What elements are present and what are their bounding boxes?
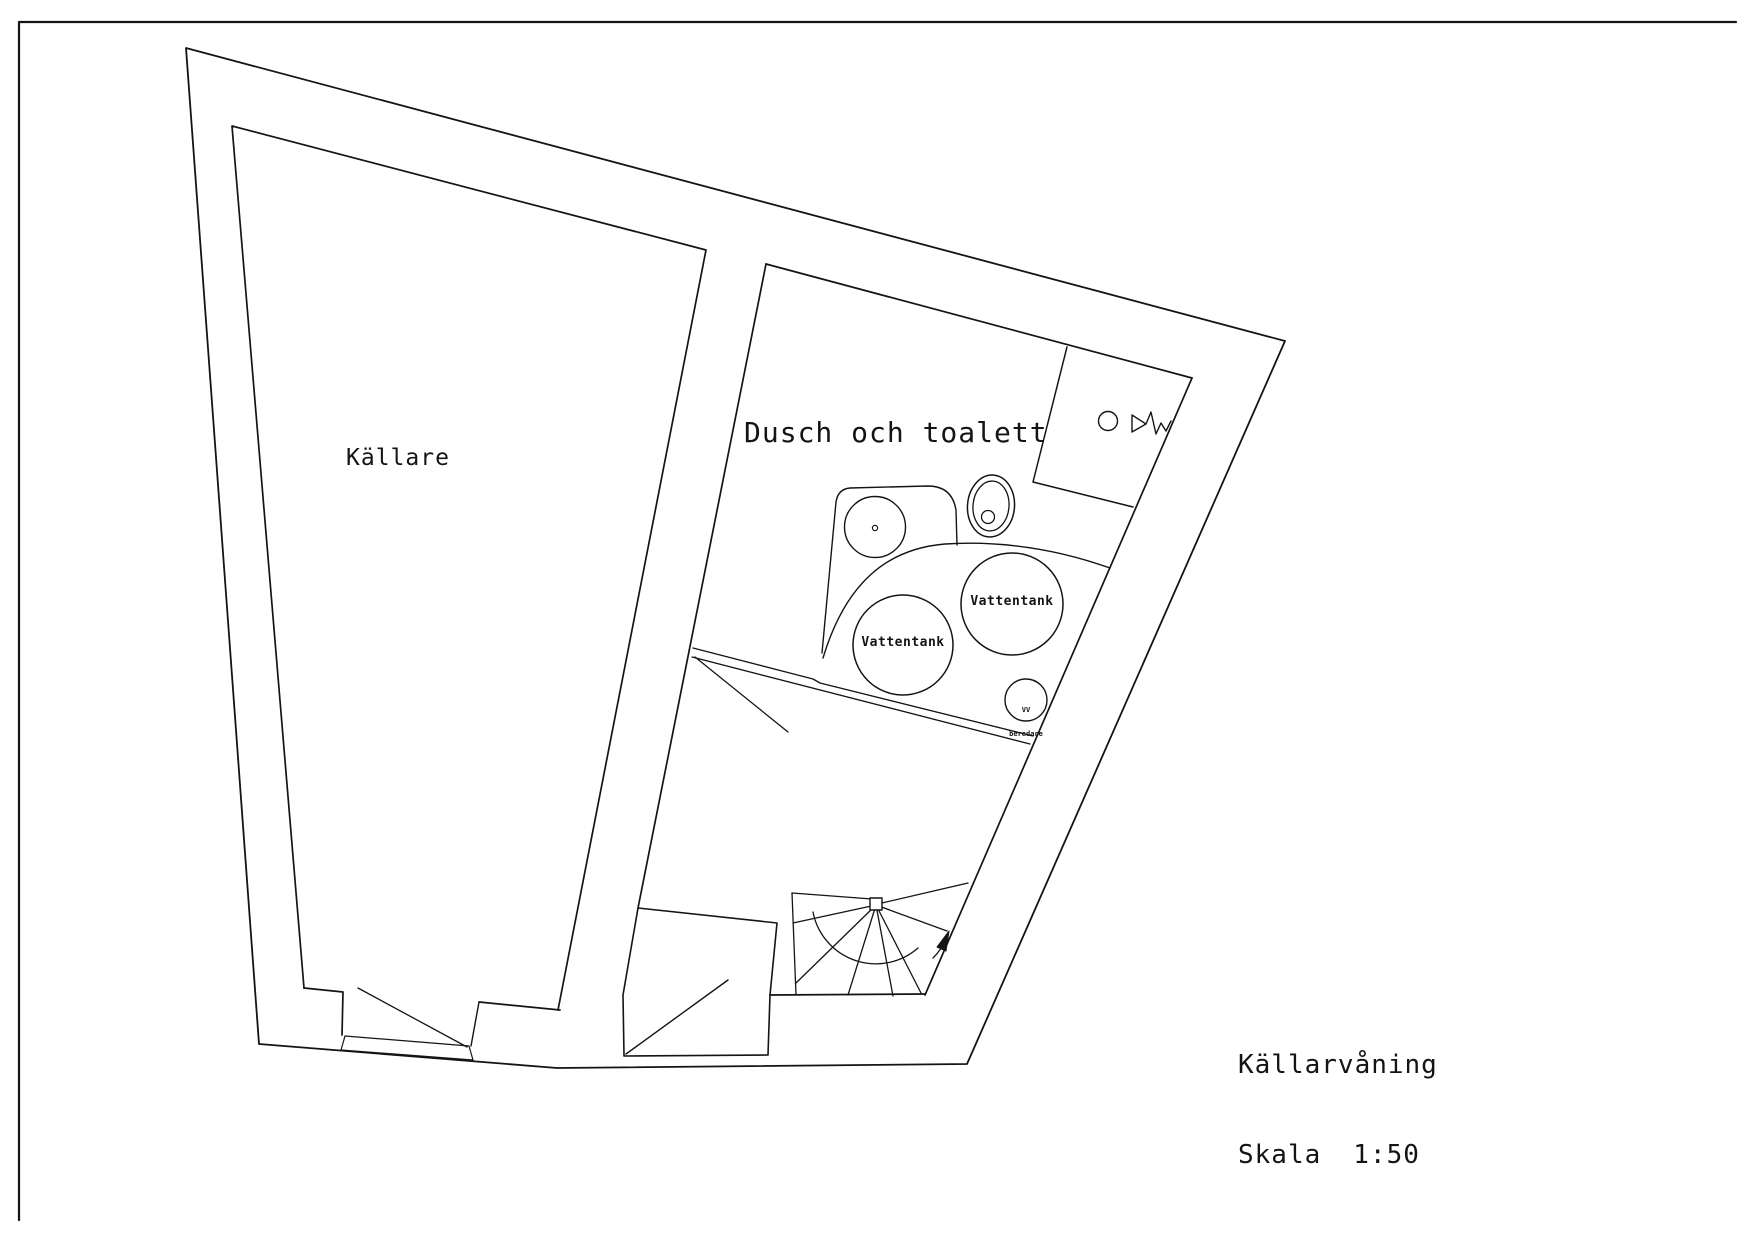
title-scale-value: 1:50 (1353, 1140, 1420, 1170)
kallare-door-jamb (471, 1002, 479, 1046)
vv-beredare-label: VV beredare (996, 690, 1056, 754)
stair-top-right-tread (882, 883, 968, 903)
bottom-wall-inner-left (479, 1002, 560, 1010)
sink-room-partition (1033, 347, 1133, 507)
vattentank-right-label: Vattentank (957, 595, 1067, 608)
shower-enclosure (822, 486, 957, 653)
title-project-name: Källarvåning (1238, 1050, 1438, 1080)
vattentank-left-label: Vattentank (848, 636, 958, 649)
valve-zigzag-symbol (1132, 412, 1171, 434)
title-block: Källarvåning Skala1:50 (1238, 990, 1438, 1230)
title-scale-label: Skala (1238, 1140, 1321, 1170)
stair-direction-arrow-head (937, 931, 949, 951)
toilet-symbol (965, 473, 1017, 539)
storage-room-outline (623, 908, 777, 1056)
stair-center-post (870, 898, 882, 910)
vv-beredare-label-line2: beredare (996, 730, 1056, 738)
shower-basin-circle (845, 497, 906, 558)
toilet-flush-circle (982, 511, 995, 524)
stair-treads (793, 905, 947, 996)
vv-beredare-label-line1: VV (996, 706, 1056, 714)
kallare-inner-walls (232, 126, 706, 1010)
stair-room-left-edge (792, 893, 796, 995)
floor-plan-page: Källare Dusch och toalett Vattentank Vat… (0, 0, 1755, 1240)
right-wall-inner (925, 378, 1192, 995)
page-border (19, 22, 1736, 1220)
storage-room-diagonal (626, 980, 728, 1054)
stair-room-top-edge (792, 893, 872, 899)
hall-door-swing (695, 657, 788, 732)
dusch-och-toalett-room-label: Dusch och toalett (744, 419, 1048, 447)
divider-wall-top-line (693, 648, 1033, 736)
shower-drain-dot (872, 525, 877, 530)
floor-plan-drawing (0, 0, 1755, 1240)
sink-drain-circle (1099, 412, 1118, 431)
outer-wall-outline (186, 48, 1285, 1068)
kallare-room-label: Källare (346, 447, 450, 470)
spiral-staircase (792, 883, 968, 996)
middle-wall-right-line (638, 264, 766, 908)
title-scale-line: Skala1:50 (1238, 1140, 1438, 1170)
top-wall-inner-right (766, 264, 1192, 378)
divider-wall-bottom-line (692, 657, 1030, 744)
kallare-bottom-jog (304, 988, 343, 1035)
